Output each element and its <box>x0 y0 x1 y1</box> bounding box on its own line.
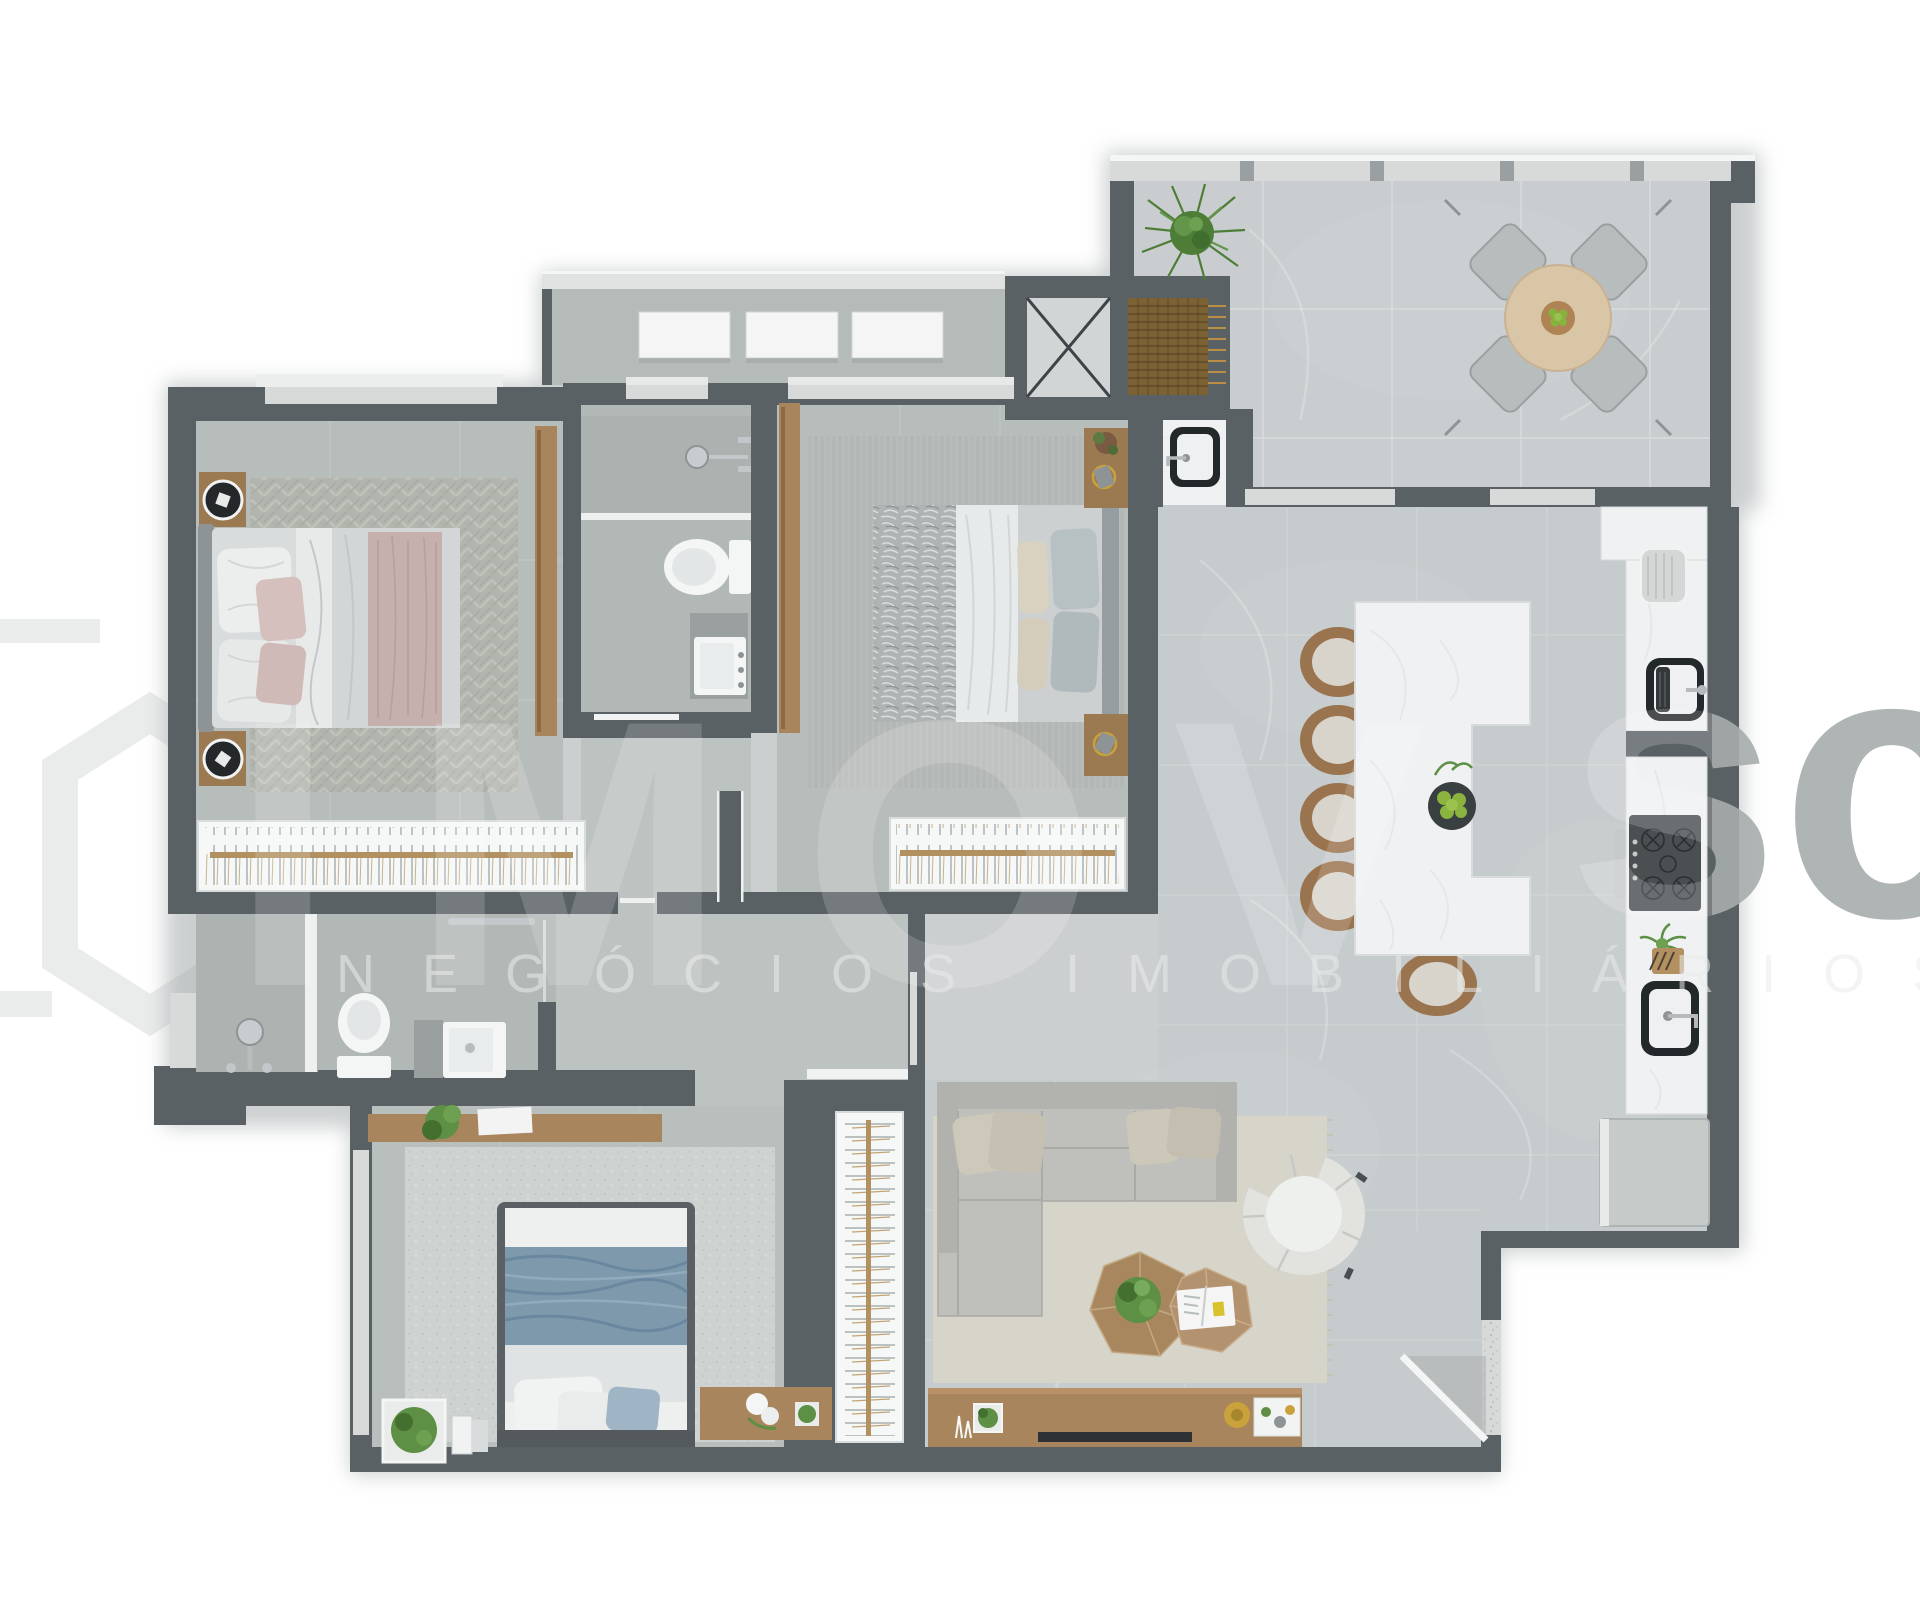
svg-text:NEGÓCIOS IMOBILIÁRIOS: NEGÓCIOS IMOBILIÁRIOS <box>336 944 1920 1004</box>
